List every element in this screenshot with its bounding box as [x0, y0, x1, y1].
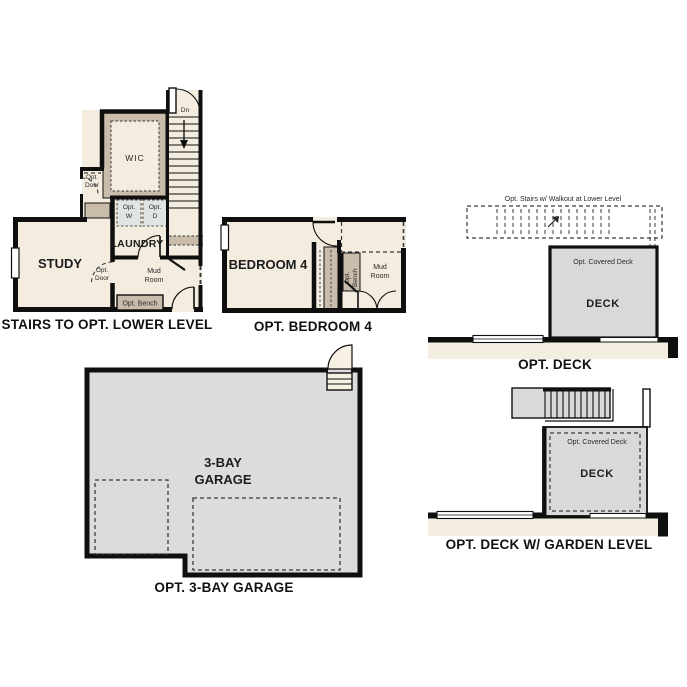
plan-opt-deck-garden-level: Opt. Covered Deck DECK OPT. DECK W/ GARD… [428, 388, 668, 552]
bedroom4-window [221, 225, 229, 250]
opt-bench-label: Opt. Bench [122, 301, 157, 308]
opt-d-label-line2: D [153, 213, 158, 220]
stair-rail [643, 389, 650, 427]
opt-bench-label-line2: Bench [352, 268, 359, 287]
garage-label-line1: 3-BAY [204, 455, 242, 470]
opt-covered-deck-label: Opt. Covered Deck [567, 439, 627, 446]
bedroom4-label: BEDROOM 4 [229, 257, 309, 272]
plan-opt-bedroom-4: BEDROOM 4 Opt. Bench Mud Room OPT. BEDRO… [221, 217, 406, 334]
mud-room-label-line1: Mud [373, 264, 387, 271]
plan-opt-3-bay-garage: 3-BAY GARAGE OPT. 3-BAY GARAGE [87, 345, 360, 595]
mud-room-label-line2: Room [145, 277, 164, 284]
plan-stairs-to-opt-lower-level: Opt. W Opt. D Dn [2, 88, 213, 332]
opt-door-upper-label-line1: Opt. [86, 174, 98, 181]
floorplan-options-sheet: Opt. W Opt. D Dn [0, 0, 687, 687]
opt-bench-label-line1: Opt. [344, 272, 351, 284]
mud-room-label-line1: Mud [147, 268, 161, 275]
laundry-label: LAUNDRY [110, 238, 163, 250]
sliding-door [600, 338, 658, 343]
plan-opt-deck: Opt. Stairs w/ Walkout at Lower Level [428, 196, 678, 372]
sliding-door [590, 514, 646, 519]
caption-opt-deck: OPT. DECK [518, 357, 592, 372]
garden-stairs [512, 388, 650, 427]
caption-opt-bedroom-4: OPT. BEDROOM 4 [254, 319, 373, 334]
wall-return [668, 337, 678, 358]
door-swing [328, 345, 352, 369]
opt-dryer-box: Opt. D [143, 200, 167, 226]
wall-band [85, 203, 110, 218]
caption-opt-3-bay-garage: OPT. 3-BAY GARAGE [154, 580, 293, 595]
floorplan-drawing: Opt. W Opt. D Dn [0, 0, 687, 687]
stair-landing-threshold [169, 236, 203, 245]
opt-d-label-line1: Opt. [149, 204, 161, 211]
deck-door-wall [552, 337, 600, 343]
opt-door-lower-label-line2: Door [95, 275, 110, 282]
opt-stairs-note: Opt. Stairs w/ Walkout at Lower Level [505, 196, 622, 203]
wic-label: WIC [125, 153, 145, 163]
deck-label: DECK [586, 298, 620, 310]
mud-room-label-line2: Room [371, 273, 390, 280]
opt-washer-box: Opt. W [117, 200, 141, 226]
deck-label: DECK [580, 468, 614, 480]
opt-stairs-dashed [467, 206, 662, 247]
opt-door-lower-label-line1: Opt. [96, 267, 108, 274]
study-window [12, 248, 20, 278]
wall-return [658, 513, 668, 537]
garage-label-line2: GARAGE [194, 472, 251, 487]
opt-w-label-line1: Opt. [123, 204, 135, 211]
opt-door-upper-label-line2: Door [85, 182, 100, 189]
opt-w-label-line2: W [126, 213, 133, 220]
caption-stairs-lower: STAIRS TO OPT. LOWER LEVEL [2, 317, 213, 332]
stairs-dn-label: Dn [181, 107, 190, 114]
caption-opt-deck-garden: OPT. DECK W/ GARDEN LEVEL [446, 537, 653, 552]
garage-entry-door [327, 345, 352, 390]
house-interior-strip [428, 517, 668, 536]
door-sill [327, 373, 352, 390]
opt-covered-deck-label: Opt. Covered Deck [573, 259, 633, 266]
study-label: STUDY [38, 256, 82, 271]
